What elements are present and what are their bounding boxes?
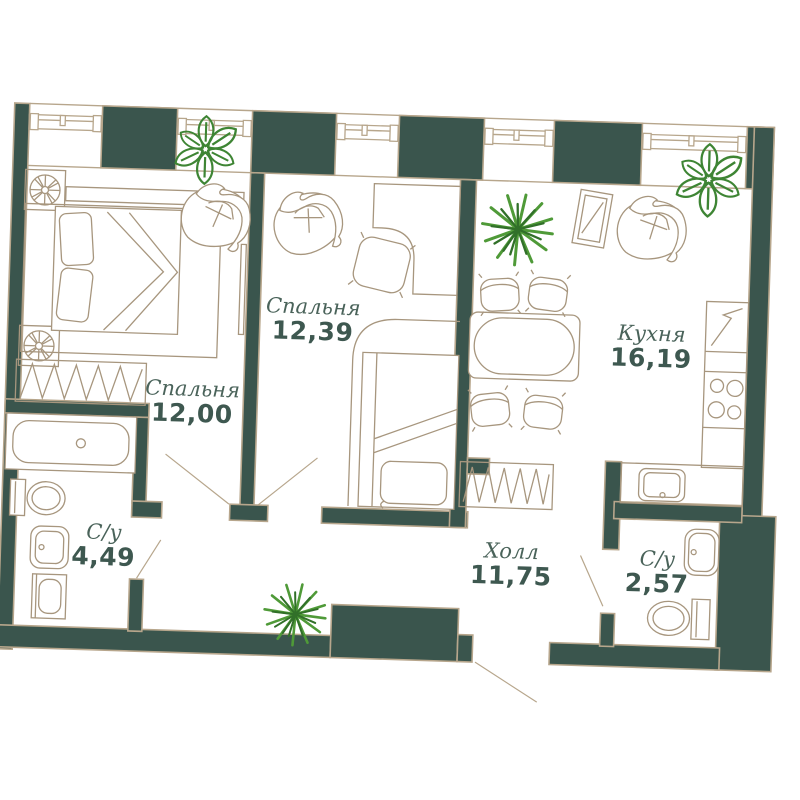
desk-chair-icon	[348, 232, 415, 298]
window-icon	[29, 113, 102, 131]
toilet-icon	[10, 479, 66, 517]
facade-pier	[398, 115, 485, 180]
sink-icon	[30, 526, 69, 569]
bathroom2-wall-stub	[600, 613, 615, 646]
hall-furniture	[459, 462, 553, 510]
room-area: 12,00	[144, 398, 240, 429]
door-swing-bathroom-2	[579, 555, 605, 606]
window-icon	[336, 123, 399, 141]
stool-icon	[468, 385, 512, 431]
stool-icon	[521, 388, 566, 434]
bottom-wall-right	[549, 643, 720, 670]
door-swing-entrance	[474, 662, 538, 702]
pillow-icon	[59, 212, 94, 266]
pillow-icon	[380, 461, 447, 505]
room-label-bathroom-1: С/у 4,49	[71, 520, 136, 572]
floorplan: Спальня 12,39 Спальня 12,00 Кухня 16,19 …	[0, 97, 775, 706]
page: Спальня 12,39 Спальня 12,00 Кухня 16,19 …	[0, 0, 800, 800]
floorplan-drawing	[0, 97, 775, 706]
toilet-icon	[647, 598, 710, 640]
fridge-icon	[711, 308, 742, 347]
door-swing-bedroom-1	[164, 454, 231, 504]
bedroom-2-furniture	[258, 180, 465, 510]
room-area: 2,57	[624, 569, 689, 599]
bathtub-icon	[5, 413, 137, 473]
door-pier	[229, 504, 267, 521]
bathroom-1-fixtures	[0, 413, 137, 621]
room-area: 4,49	[71, 542, 136, 572]
armchair-icon	[268, 184, 348, 260]
hanger-rail	[20, 363, 142, 401]
mirror-icon	[572, 189, 613, 248]
double-bed-icon	[51, 206, 181, 334]
room-area: 12,39	[265, 316, 361, 347]
washing-machine-icon	[31, 574, 66, 619]
stove-icon	[708, 379, 743, 419]
armchair-icon	[614, 193, 691, 264]
bathroom1-wall-stub	[128, 579, 144, 631]
bathroom1-wall-foot	[132, 501, 163, 518]
kitchen-sink-icon	[638, 468, 685, 501]
room-area: 11,75	[470, 561, 552, 592]
plant-icon	[481, 194, 553, 266]
stool-icon	[525, 270, 570, 317]
dining-table-icon	[468, 312, 580, 382]
bottom-wall-left	[0, 625, 331, 658]
bottom-right-wall-block	[715, 515, 776, 672]
entrance-jamb	[457, 635, 473, 662]
window-icon	[642, 133, 747, 152]
window-icon	[484, 128, 554, 146]
room-label-bathroom-2: С/у 2,57	[624, 547, 689, 599]
facade-pier	[553, 120, 643, 185]
facade-pier	[251, 111, 337, 176]
bedroom-1-furniture	[15, 169, 258, 408]
single-bed-icon	[358, 352, 459, 510]
door-swing-bedroom-2	[258, 456, 318, 507]
plant-icon	[673, 143, 747, 217]
wardrobe-icon	[459, 462, 553, 510]
room-label-bedroom-2: Спальня 12,39	[265, 294, 361, 347]
room-label-kitchen: Кухня 16,19	[610, 321, 693, 374]
room-label-bedroom-1: Спальня 12,00	[144, 376, 240, 429]
door-swing-bathroom-1	[137, 539, 161, 579]
pillow-icon	[56, 267, 94, 322]
stool-icon	[479, 272, 521, 316]
armchair-icon	[175, 178, 257, 255]
facade-pier	[101, 106, 178, 170]
room-area: 16,19	[610, 343, 692, 374]
room-label-hall: Холл 11,75	[470, 539, 553, 592]
bedroom2-bottom-wall	[321, 507, 467, 528]
bottom-wall-block	[330, 604, 459, 661]
